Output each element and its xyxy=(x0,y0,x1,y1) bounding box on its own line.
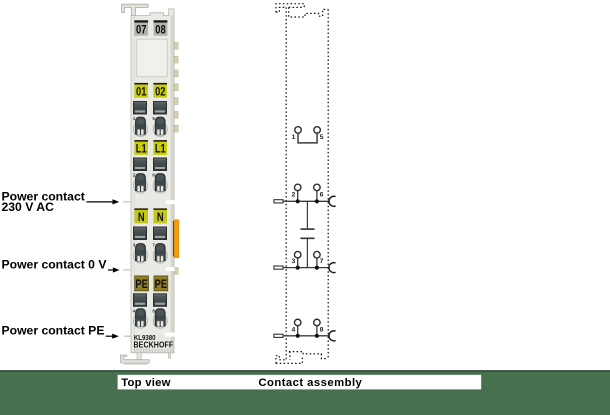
svg-text:08: 08 xyxy=(155,23,165,36)
svg-text:N: N xyxy=(157,211,164,224)
svg-text:3: 3 xyxy=(133,243,136,248)
svg-text:Power contact 0 V: Power contact 0 V xyxy=(2,257,108,271)
svg-text:5: 5 xyxy=(320,134,324,141)
svg-text:PE: PE xyxy=(135,278,147,291)
svg-text:4: 4 xyxy=(292,326,296,333)
svg-text:Power contact PE: Power contact PE xyxy=(2,323,105,337)
svg-text:2: 2 xyxy=(133,173,136,178)
svg-text:02: 02 xyxy=(155,85,165,98)
svg-text:Contact assembly: Contact assembly xyxy=(258,377,362,389)
svg-text:1: 1 xyxy=(133,116,136,121)
svg-text:6: 6 xyxy=(320,192,324,199)
svg-text:BECKHOFF: BECKHOFF xyxy=(134,340,174,350)
svg-text:L1: L1 xyxy=(155,143,166,156)
svg-text:8: 8 xyxy=(320,326,324,333)
svg-text:2: 2 xyxy=(292,192,296,199)
svg-text:PE: PE xyxy=(155,278,167,291)
svg-text:7: 7 xyxy=(152,243,155,248)
svg-text:6: 6 xyxy=(152,173,155,178)
svg-text:8: 8 xyxy=(152,309,155,314)
svg-text:1: 1 xyxy=(292,134,296,141)
svg-text:01: 01 xyxy=(136,85,146,98)
svg-text:L1: L1 xyxy=(136,143,147,156)
svg-text:07: 07 xyxy=(136,23,146,36)
svg-text:7: 7 xyxy=(320,258,324,265)
svg-text:N: N xyxy=(138,211,145,224)
svg-text:Top view: Top view xyxy=(121,377,171,389)
svg-text:5: 5 xyxy=(152,116,155,121)
svg-text:230 V AC: 230 V AC xyxy=(2,200,55,214)
svg-text:3: 3 xyxy=(292,258,296,265)
svg-text:4: 4 xyxy=(133,309,136,314)
